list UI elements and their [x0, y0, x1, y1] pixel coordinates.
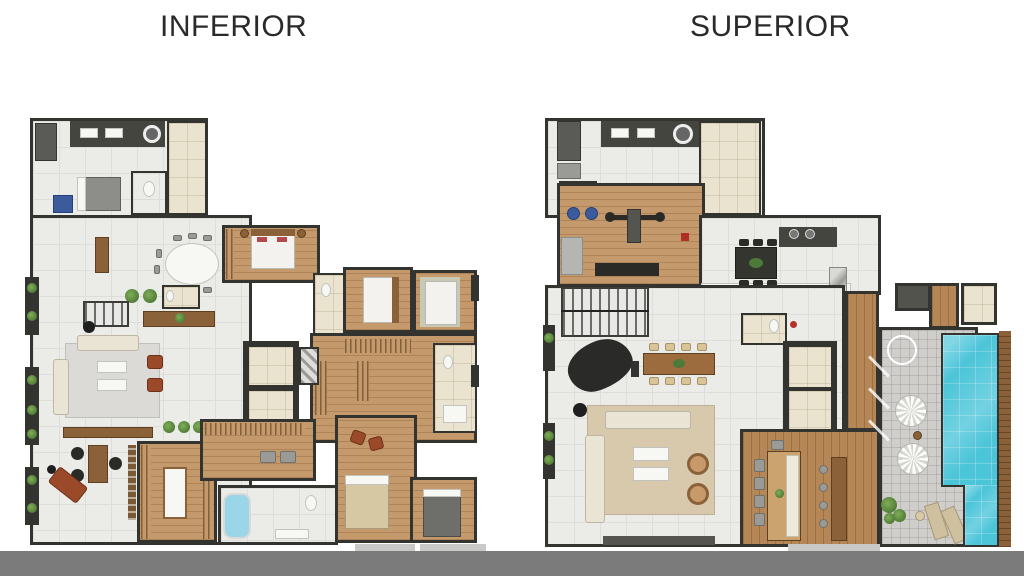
pool-extension [963, 485, 999, 547]
wardrobe [345, 339, 411, 353]
exercise-ball [585, 207, 598, 220]
wicker-chair [687, 483, 709, 505]
dining-chair [665, 343, 675, 351]
toilet [321, 283, 331, 297]
chair [767, 239, 777, 246]
headboard [392, 277, 399, 323]
console-table [95, 237, 109, 273]
wall-stub [471, 275, 479, 301]
pantry [699, 121, 761, 215]
headboard [251, 229, 295, 236]
oval-dining-table [165, 243, 219, 285]
elevator [789, 347, 831, 387]
inferior-plan [25, 115, 477, 551]
chair [739, 239, 749, 246]
plant [27, 475, 37, 485]
outdoor-table [913, 431, 922, 440]
chaise-sofa [585, 435, 605, 523]
plant [143, 289, 157, 303]
pot [805, 229, 815, 239]
umbrella [895, 395, 927, 427]
gym-mat [561, 237, 583, 275]
deck-chair [754, 459, 765, 472]
deck-chair [754, 495, 765, 508]
pouf [915, 511, 925, 521]
pot [789, 229, 799, 239]
dining-chair [697, 343, 707, 351]
stair-rail [561, 310, 649, 312]
nightstand [240, 229, 249, 238]
side-table [573, 403, 587, 417]
pillows [345, 475, 389, 485]
armchair [147, 355, 163, 369]
bar-counter [831, 457, 847, 541]
closet-island [163, 467, 187, 519]
round-sink [673, 124, 693, 144]
table-runner [786, 455, 799, 537]
elevator [249, 347, 293, 385]
toilet [769, 319, 779, 333]
ottoman [260, 451, 276, 463]
centerpiece [673, 359, 685, 368]
toilet [143, 181, 155, 197]
plant [27, 405, 37, 415]
pool-deck-edge [999, 331, 1011, 547]
plant [544, 431, 554, 441]
dumbbell-rack [595, 263, 659, 276]
tv-sideboard [63, 427, 153, 438]
pantry [167, 121, 207, 215]
ground-strip [0, 551, 1024, 576]
centerpiece [749, 258, 763, 268]
umbrella [897, 443, 929, 475]
sun-ring [887, 335, 917, 365]
dining-chair [156, 249, 162, 258]
superior-title: SUPERIOR [690, 10, 835, 44]
plant [884, 513, 895, 524]
dining-chair [203, 235, 212, 241]
armchair [147, 378, 163, 392]
floor-plan-sheet: INFERIOR SUPERIOR [0, 0, 1024, 576]
appliance-stack [557, 121, 581, 161]
gym-accessory [681, 233, 689, 241]
wardrobe [141, 445, 151, 539]
dining-chair [681, 343, 691, 351]
laundry-machine [557, 163, 581, 179]
toilet [166, 290, 174, 302]
pool-deck-top [929, 283, 959, 329]
side-table [83, 321, 95, 333]
dining-chair [154, 265, 160, 274]
ottoman [280, 451, 296, 463]
lavabo [741, 313, 787, 345]
bathtub [223, 493, 251, 539]
wicker-chair [687, 453, 709, 475]
office-chair [109, 457, 122, 470]
bench [627, 209, 641, 243]
plant [27, 503, 37, 513]
appliance-stack [35, 123, 57, 161]
vanity [275, 529, 309, 539]
toilet [443, 355, 453, 369]
wardrobe [357, 361, 369, 401]
dining-chair [188, 233, 197, 239]
pillow [257, 237, 267, 242]
sofa [77, 335, 139, 351]
pillows [423, 489, 461, 497]
dining-chair [681, 377, 691, 385]
plant [544, 455, 554, 465]
dining-chair [173, 235, 182, 241]
suite1-closet [226, 229, 234, 279]
sink [105, 128, 123, 138]
sauna [895, 283, 931, 311]
plant [27, 311, 37, 321]
dining-chair [649, 343, 659, 351]
plant [544, 333, 554, 343]
coffee-table [97, 379, 127, 391]
guest-chair [71, 447, 84, 460]
coffee-table [97, 361, 127, 373]
plant [27, 283, 37, 293]
shaft-hatch [299, 347, 319, 385]
deck-chair [754, 477, 765, 490]
wall-stub [471, 365, 479, 387]
wine-glass [790, 321, 797, 328]
piano-bench [631, 361, 639, 377]
bar-stool [819, 519, 828, 528]
deck-chair [754, 513, 765, 526]
exercise-ball [567, 207, 580, 220]
sofa [605, 411, 691, 429]
sink [611, 128, 629, 138]
toilet [305, 495, 317, 511]
elevator [789, 391, 831, 431]
plant [27, 429, 37, 439]
sink [637, 128, 655, 138]
plant [775, 489, 784, 498]
inferior-title: INFERIOR [160, 10, 305, 44]
coffee-table [633, 447, 669, 461]
superior-plan [543, 115, 1015, 551]
stairs [561, 287, 649, 337]
side-table [47, 465, 56, 474]
plant [163, 421, 175, 433]
dining-chair [665, 377, 675, 385]
bar-stool [819, 465, 828, 474]
plant [893, 509, 906, 522]
wardrobe [205, 423, 305, 435]
bar-stool [819, 501, 828, 510]
bed [425, 281, 457, 325]
coffee-table [633, 467, 669, 481]
bar-stool [819, 483, 828, 492]
sink [80, 128, 98, 138]
plant [175, 313, 185, 323]
plant [178, 421, 190, 433]
pool [941, 333, 999, 487]
laundry-machine [53, 195, 73, 213]
plant [27, 375, 37, 385]
dining-chair [697, 377, 707, 385]
desk [88, 445, 108, 483]
chair [753, 239, 763, 246]
pillow [277, 237, 287, 242]
balcony-planter [543, 325, 555, 371]
dining-chair [203, 287, 212, 293]
bookshelf [128, 445, 136, 520]
dining-chair [649, 377, 659, 385]
chaise-sofa [53, 359, 69, 415]
media-console [603, 536, 715, 545]
nightstand [297, 229, 306, 238]
deck-chair [771, 440, 784, 450]
shower [443, 405, 467, 423]
maids-bed-pillow [77, 177, 86, 211]
weight-plate [605, 212, 615, 222]
weight-plate [655, 212, 665, 222]
cooktop [143, 125, 161, 143]
changing-room [961, 283, 997, 325]
